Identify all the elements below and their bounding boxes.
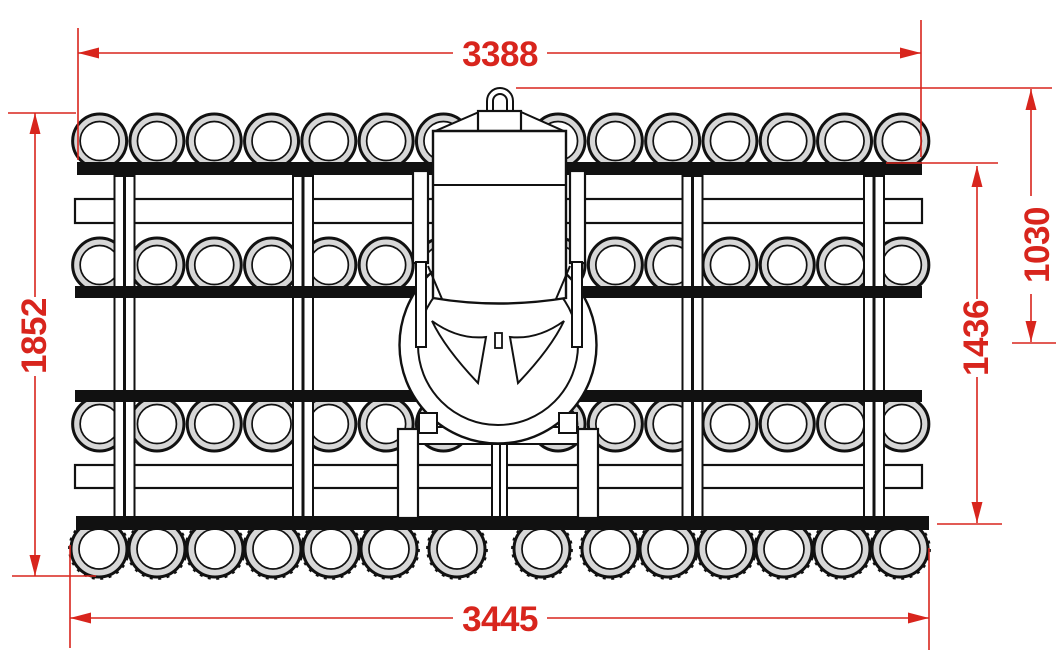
roller-ring-inner <box>590 529 630 569</box>
arrowhead-up <box>972 166 983 187</box>
roller-ring-inner <box>437 529 477 569</box>
roller-ring-inner <box>596 405 635 444</box>
roller-ring-inner <box>252 246 291 285</box>
roller-ring-inner <box>706 529 746 569</box>
roller-ring-inner <box>137 122 176 161</box>
drawing-canvas: 3388 3445 1852 <box>0 0 1059 666</box>
roller-ring-inner <box>882 122 921 161</box>
roller-ring <box>588 114 642 168</box>
roller-ring <box>187 238 241 292</box>
roller-ring-inner <box>137 405 176 444</box>
roller-ring <box>703 114 757 168</box>
arrowhead-left <box>78 48 99 59</box>
roller-ring-inner <box>369 529 409 569</box>
dimension-label-frame-length: 1436 <box>957 300 996 376</box>
roller-ring-inner <box>195 405 234 444</box>
roller-ring <box>130 114 184 168</box>
roller-ring-inner <box>137 529 177 569</box>
roller-ring-inner <box>825 122 864 161</box>
roller-ring-inner <box>367 122 406 161</box>
support-flat-bar <box>125 176 135 517</box>
dimension-label-bottom-width: 3445 <box>462 600 538 639</box>
roller-ring <box>703 397 757 451</box>
roller-ring <box>588 238 642 292</box>
roller-ring-inner <box>653 122 692 161</box>
roller-ring-inner <box>309 405 348 444</box>
roller-ring-inner <box>596 122 635 161</box>
support-flat-bar <box>683 176 693 517</box>
roller-ring <box>359 238 413 292</box>
roller-ring <box>187 114 241 168</box>
roller-ring-inner <box>880 529 920 569</box>
roller-ring-inner <box>822 529 862 569</box>
cylinder-right <box>570 171 585 263</box>
roller-ring-inner <box>648 529 688 569</box>
support-flat-bar <box>864 176 874 517</box>
support-flat-bar <box>875 176 885 517</box>
roller-ring-inner <box>80 246 119 285</box>
arrowhead-right <box>908 613 929 624</box>
roller-ring-inner <box>768 246 807 285</box>
roller-ring-inner <box>710 405 749 444</box>
arrowhead-down <box>1026 321 1037 342</box>
support-flat-bar <box>304 176 314 517</box>
drawbar-right <box>500 444 507 517</box>
roller-ring <box>245 238 299 292</box>
rear-post-left <box>398 429 418 518</box>
roller-ring-inner <box>80 122 119 161</box>
roller-ring-inner <box>882 405 921 444</box>
roller-ring <box>760 114 814 168</box>
rear-post-right <box>578 429 598 518</box>
roller-ring-inner <box>825 246 864 285</box>
axle-bar-row4 <box>76 516 929 530</box>
roller-ring <box>359 114 413 168</box>
roller-ring <box>130 397 184 451</box>
roller-ring <box>187 397 241 451</box>
dimension-label-hitch-to-axle: 1030 <box>1018 207 1057 283</box>
arrowhead-left <box>70 613 91 624</box>
cylinder-left <box>413 171 428 263</box>
disc-center-bracket <box>495 333 502 348</box>
cylinder-rod-left <box>416 262 426 347</box>
roller-ring-inner <box>252 405 291 444</box>
dimension-overall-length: 1852 <box>8 113 96 576</box>
roller-ring-inner <box>309 122 348 161</box>
technical-drawing: 3388 3445 1852 <box>0 0 1059 666</box>
roller-ring-inner <box>137 246 176 285</box>
roller-ring <box>245 397 299 451</box>
roller-ring-inner <box>768 405 807 444</box>
roller-ring-inner <box>311 529 351 569</box>
support-flat-bar <box>115 176 125 517</box>
roller-ring-inner <box>825 405 864 444</box>
roller-ring <box>73 114 127 168</box>
roller-ring-inner <box>710 122 749 161</box>
drawbar-left <box>492 444 500 517</box>
frame-support-post <box>293 176 313 517</box>
arrowhead-right <box>900 48 921 59</box>
disc-clamp-right <box>559 413 577 433</box>
roller-ring-inner <box>195 529 235 569</box>
arrowhead-down <box>30 555 41 576</box>
roller-ring-inner <box>768 122 807 161</box>
roller-ring <box>130 238 184 292</box>
roller-ring-inner <box>253 529 293 569</box>
roller-ring-inner <box>80 405 119 444</box>
frame-support-post <box>864 176 884 517</box>
machine-body <box>433 131 566 304</box>
cylinder-rod-right <box>572 262 582 347</box>
frame-support-post <box>115 176 135 517</box>
arrowhead-down <box>972 502 983 523</box>
roller-ring-inner <box>79 529 119 569</box>
hitch-bracket <box>478 111 521 131</box>
dimension-label-overall-length: 1852 <box>15 298 54 374</box>
roller-ring-inner <box>309 246 348 285</box>
arrowhead-up <box>30 113 41 134</box>
roller-ring-inner <box>764 529 804 569</box>
roller-ring <box>646 114 700 168</box>
disc-clamp-left <box>419 413 437 433</box>
roller-ring-inner <box>522 529 562 569</box>
roller-ring <box>302 114 356 168</box>
frame-support-post <box>683 176 703 517</box>
roller-ring <box>245 114 299 168</box>
support-flat-bar <box>293 176 303 517</box>
roller-ring-inner <box>195 122 234 161</box>
support-flat-bar <box>693 176 703 517</box>
roller-ring-inner <box>195 246 234 285</box>
roller-ring <box>703 238 757 292</box>
roller-ring <box>818 114 872 168</box>
roller-ring-inner <box>596 246 635 285</box>
roller-ring <box>760 238 814 292</box>
arrowhead-up <box>1026 89 1037 110</box>
roller-ring-inner <box>882 246 921 285</box>
roller-ring-inner <box>710 246 749 285</box>
dimension-label-top-width: 3388 <box>462 35 538 74</box>
roller-ring <box>760 397 814 451</box>
roller-ring-inner <box>252 122 291 161</box>
roller-ring-inner <box>367 246 406 285</box>
